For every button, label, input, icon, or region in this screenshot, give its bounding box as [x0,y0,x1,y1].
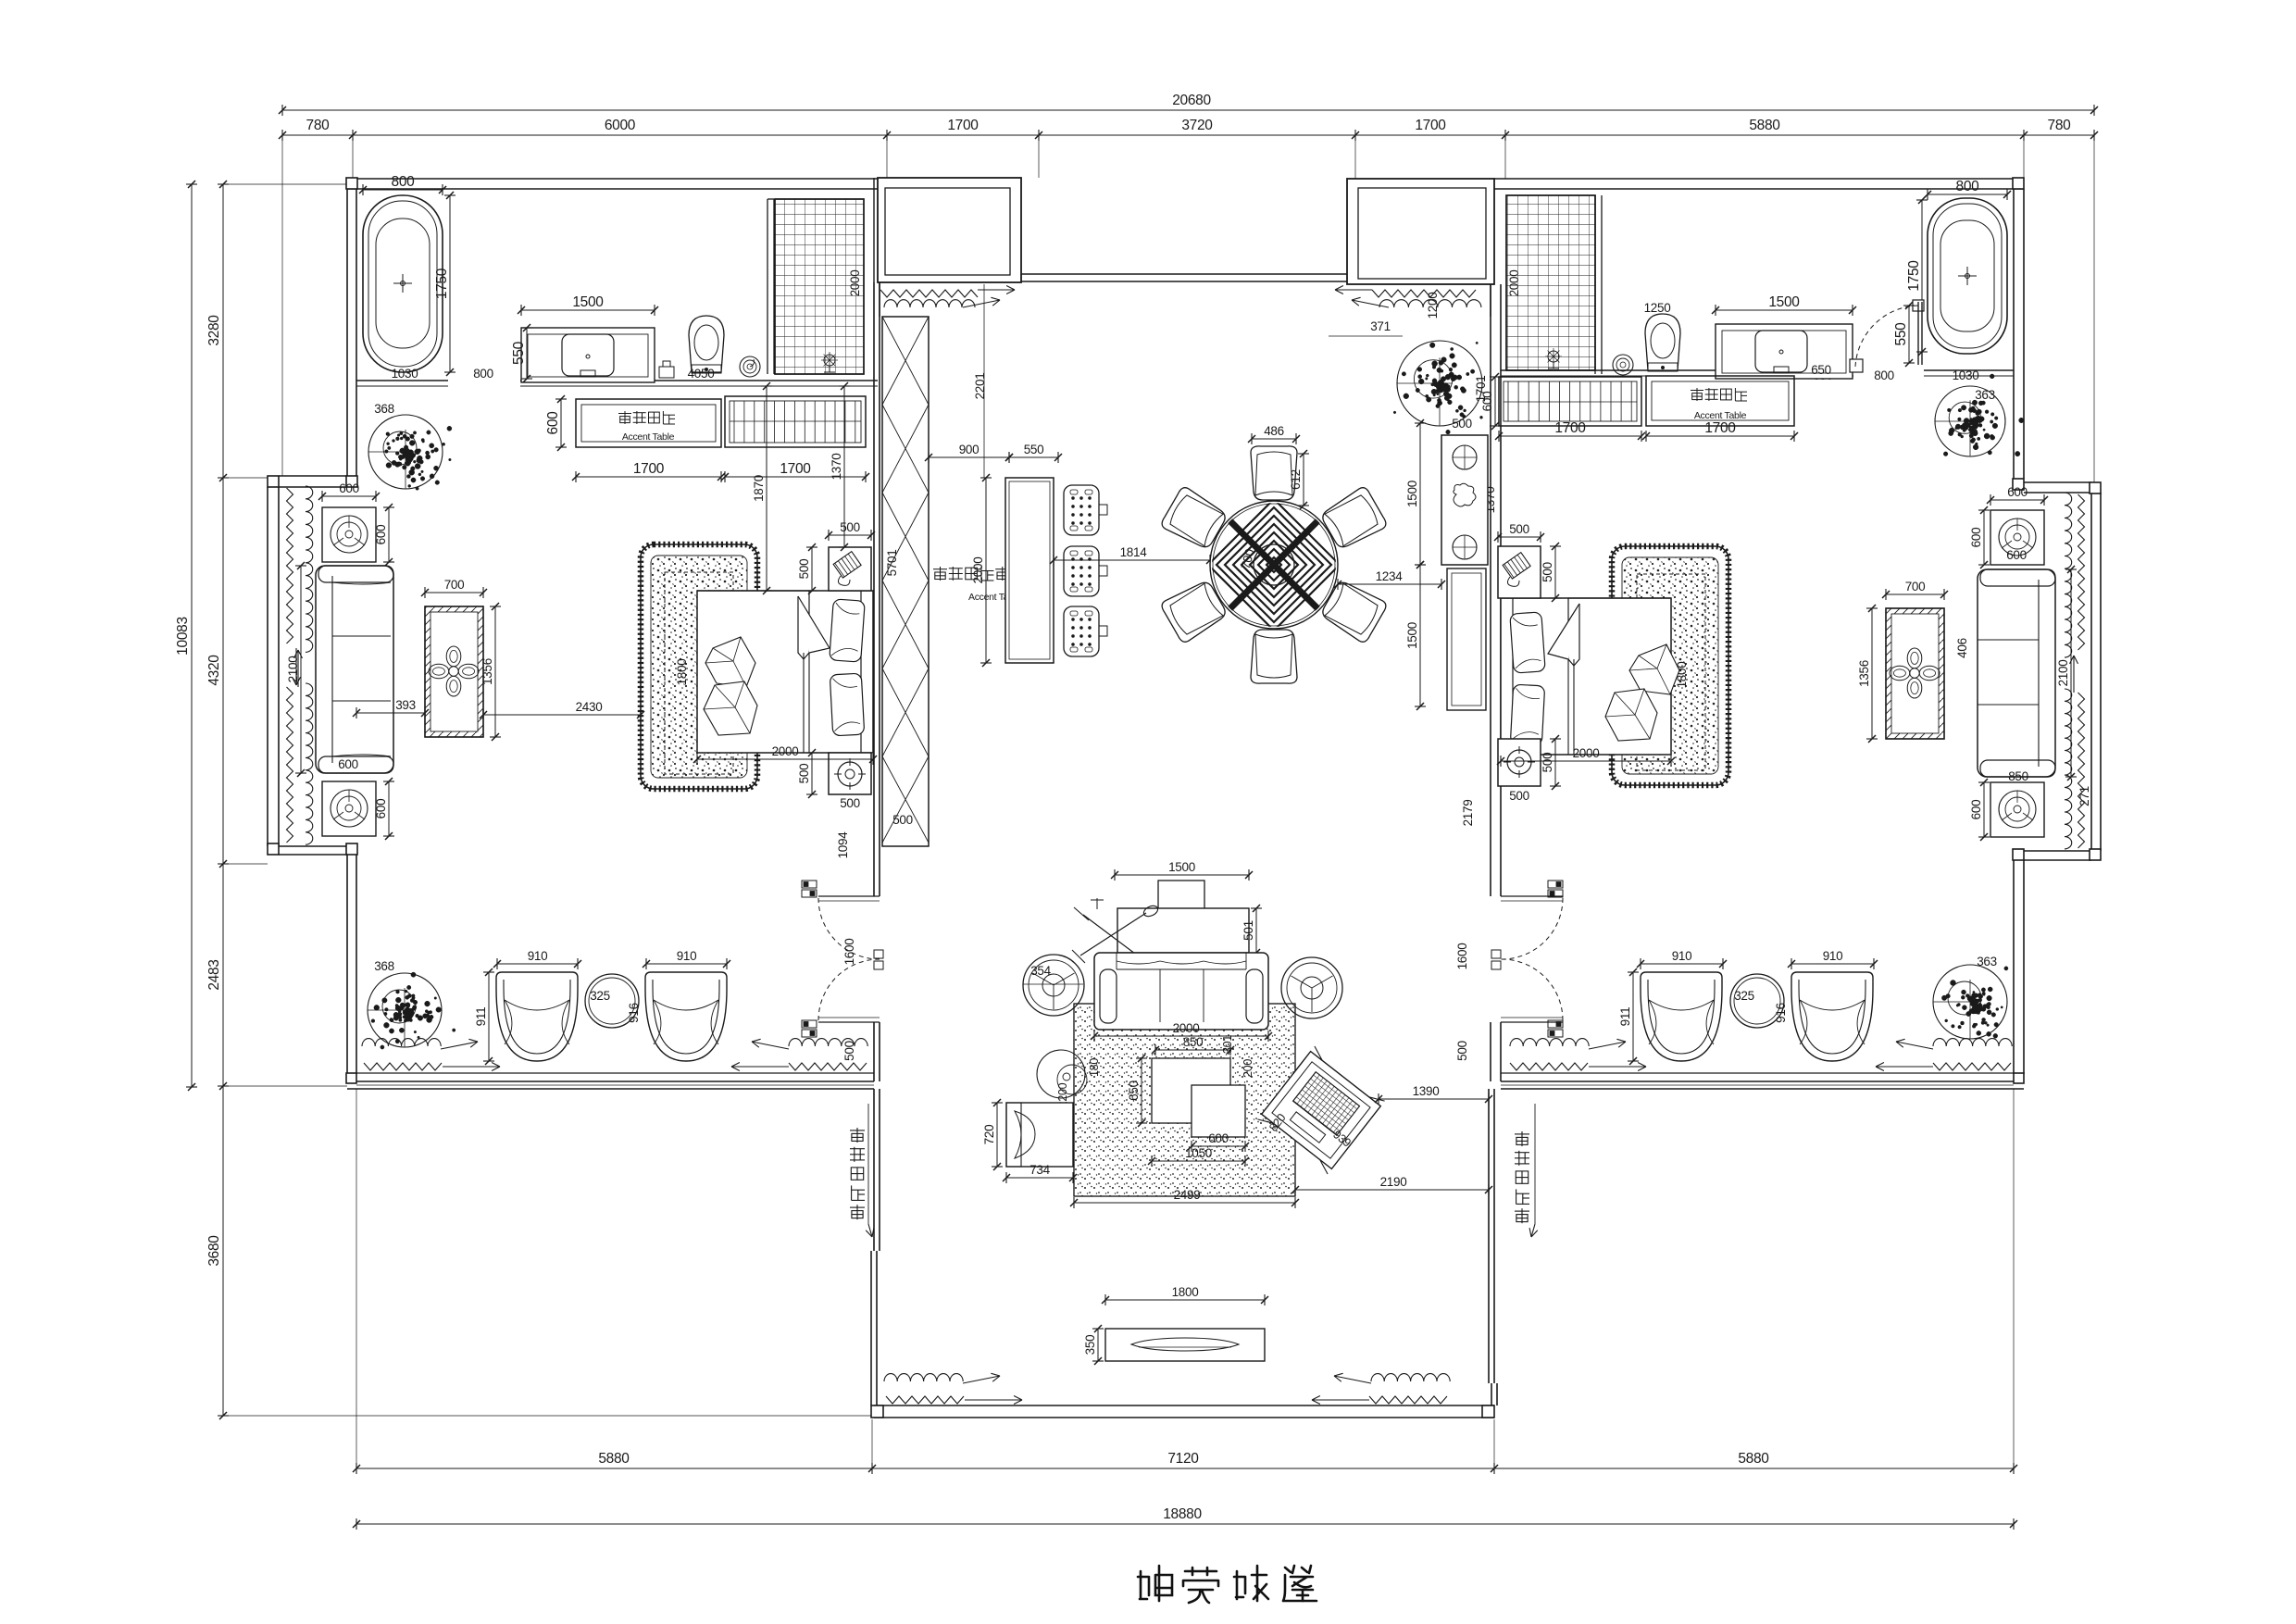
svg-text:3280: 3280 [206,315,222,346]
svg-text:350: 350 [1083,1335,1097,1355]
svg-text:550: 550 [1024,443,1044,456]
svg-text:1800: 1800 [1172,1285,1199,1299]
svg-text:600: 600 [1969,528,1983,548]
svg-text:910: 910 [528,949,548,963]
svg-text:600: 600 [545,411,561,435]
svg-text:600: 600 [2006,548,2027,562]
svg-text:3720: 3720 [1181,118,1213,133]
svg-text:368: 368 [374,959,394,973]
svg-text:1370: 1370 [830,454,843,481]
svg-text:368: 368 [374,402,394,416]
svg-text:1500: 1500 [1768,294,1800,310]
svg-text:1700: 1700 [1554,420,1586,436]
svg-text:200: 200 [1242,1059,1254,1078]
svg-text:1600: 1600 [842,939,856,966]
svg-text:363: 363 [1977,955,1997,968]
svg-text:1050: 1050 [1185,1146,1212,1160]
svg-text:Accent Table: Accent Table [622,431,675,443]
svg-text:600: 600 [374,799,388,819]
svg-text:371: 371 [1370,319,1391,333]
svg-text:5701: 5701 [885,550,899,577]
svg-text:18880: 18880 [1163,1506,1202,1522]
svg-text:1356: 1356 [1857,660,1871,687]
svg-text:600: 600 [1969,800,1983,820]
svg-text:500: 500 [840,796,860,810]
svg-text:850: 850 [2008,769,2028,783]
svg-text:1701: 1701 [1474,376,1488,403]
svg-text:780: 780 [2048,118,2072,133]
svg-text:2190: 2190 [1380,1175,1407,1189]
svg-text:180: 180 [1088,1058,1101,1077]
svg-text:1030: 1030 [1953,369,1979,382]
svg-text:500: 500 [1455,1041,1469,1061]
svg-text:5880: 5880 [598,1451,630,1467]
svg-text:363: 363 [1975,388,1995,402]
svg-text:2000: 2000 [772,744,799,758]
svg-text:910: 910 [677,949,697,963]
svg-text:650: 650 [1811,363,1831,377]
svg-text:700: 700 [1905,580,1926,593]
svg-text:800: 800 [392,174,416,190]
svg-text:1500: 1500 [1405,622,1419,649]
svg-text:2430: 2430 [576,700,603,714]
svg-text:1500: 1500 [1168,860,1195,874]
svg-text:1700: 1700 [780,461,811,477]
svg-text:1250: 1250 [1644,301,1671,315]
svg-text:1500: 1500 [1405,481,1419,507]
svg-text:1500: 1500 [572,294,604,310]
svg-text:1356: 1356 [480,658,494,685]
svg-text:486: 486 [1264,424,1284,438]
svg-text:5880: 5880 [1749,118,1780,133]
svg-text:1700: 1700 [1415,118,1446,133]
svg-text:1234: 1234 [1376,569,1404,583]
svg-text:20680: 20680 [1172,93,1211,108]
svg-text:550: 550 [1893,322,1909,346]
svg-text:1030: 1030 [392,367,418,381]
svg-text:500: 500 [797,559,811,580]
svg-text:325: 325 [590,989,610,1003]
svg-text:850: 850 [1183,1035,1204,1049]
svg-text:6000: 6000 [605,118,636,133]
svg-text:2000: 2000 [1507,270,1521,297]
svg-text:910: 910 [1823,949,1843,963]
svg-text:500: 500 [1509,789,1529,803]
svg-text:3680: 3680 [206,1235,222,1267]
svg-text:2179: 2179 [1461,800,1475,827]
svg-text:1870: 1870 [752,475,766,502]
svg-text:4320: 4320 [206,655,222,686]
svg-text:2000: 2000 [1173,1021,1200,1035]
svg-text:1700: 1700 [633,461,665,477]
svg-text:7120: 7120 [1167,1451,1199,1467]
svg-text:600: 600 [374,525,388,545]
svg-text:600: 600 [2007,485,2028,499]
svg-text:911: 911 [474,1007,488,1027]
svg-text:650: 650 [1127,1081,1141,1101]
svg-text:1700: 1700 [947,118,979,133]
svg-text:301: 301 [1221,1035,1234,1054]
svg-text:800: 800 [1874,369,1894,382]
svg-text:2483: 2483 [206,959,222,990]
svg-text:10083: 10083 [175,617,191,656]
svg-text:354: 354 [1030,964,1051,978]
svg-text:600: 600 [339,481,359,495]
svg-text:2201: 2201 [973,373,987,400]
svg-text:1094: 1094 [836,831,850,859]
svg-text:900: 900 [959,443,980,456]
svg-text:1600: 1600 [1455,943,1469,970]
svg-text:500: 500 [892,813,913,827]
svg-text:1800: 1800 [675,659,689,686]
svg-text:2000: 2000 [971,557,985,584]
svg-text:612: 612 [1289,469,1303,490]
svg-text:2499: 2499 [1174,1188,1201,1202]
svg-text:800: 800 [473,367,493,381]
svg-text:550: 550 [511,341,527,365]
svg-text:500: 500 [1509,522,1529,536]
svg-text:2100: 2100 [2056,660,2070,687]
svg-text:600: 600 [1208,1131,1229,1145]
svg-text:1390: 1390 [1413,1084,1440,1098]
svg-text:4050: 4050 [688,367,715,381]
svg-text:734: 734 [1029,1163,1050,1177]
svg-text:500: 500 [797,764,811,784]
svg-text:700: 700 [444,578,465,592]
svg-text:2000: 2000 [1573,746,1600,760]
svg-text:325: 325 [1734,989,1754,1003]
svg-text:1750: 1750 [434,268,450,299]
svg-text:1750: 1750 [1906,260,1922,292]
svg-text:780: 780 [306,118,331,133]
svg-text:600: 600 [338,757,358,771]
svg-text:910: 910 [1672,949,1692,963]
svg-text:393: 393 [395,698,416,712]
svg-text:1700: 1700 [1704,420,1736,436]
svg-text:916: 916 [627,1003,641,1023]
svg-text:720: 720 [982,1125,996,1145]
svg-text:500: 500 [840,520,860,534]
svg-text:501: 501 [1242,920,1255,941]
svg-text:5880: 5880 [1738,1451,1769,1467]
svg-text:406: 406 [1955,638,1969,658]
svg-text:911: 911 [1618,1007,1632,1027]
svg-text:1814: 1814 [1120,545,1148,559]
svg-text:500: 500 [1541,562,1554,582]
svg-text:916: 916 [1774,1003,1788,1023]
svg-text:500: 500 [1541,753,1554,773]
svg-text:2000: 2000 [848,270,862,297]
svg-text:800: 800 [1956,179,1980,194]
